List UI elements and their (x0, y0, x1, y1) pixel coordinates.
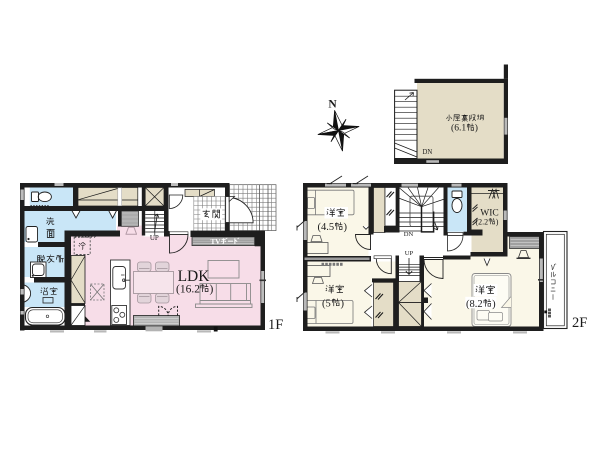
svg-text:UP: UP (150, 234, 159, 242)
svg-text:DN: DN (404, 231, 414, 238)
svg-text:DN: DN (423, 149, 433, 156)
svg-text:(4.5: (4.5 (318, 222, 335, 233)
svg-text:(5: (5 (322, 298, 331, 309)
svg-text:): ) (210, 283, 214, 295)
svg-text:): ) (496, 217, 499, 226)
svg-text:2F: 2F (572, 315, 587, 331)
svg-text:): ) (344, 222, 348, 233)
svg-text:): ) (475, 123, 478, 134)
svg-text:): ) (341, 298, 345, 309)
svg-text:(6.1: (6.1 (451, 123, 466, 134)
svg-text:): ) (492, 299, 496, 310)
svg-text:1F: 1F (268, 317, 283, 333)
svg-text:N: N (328, 99, 337, 111)
svg-text:(16.2: (16.2 (176, 283, 200, 295)
svg-text:UP: UP (405, 250, 414, 257)
svg-text:(2.2: (2.2 (476, 217, 489, 226)
svg-text:(8.2: (8.2 (466, 299, 483, 310)
svg-text:TV: TV (211, 238, 222, 246)
